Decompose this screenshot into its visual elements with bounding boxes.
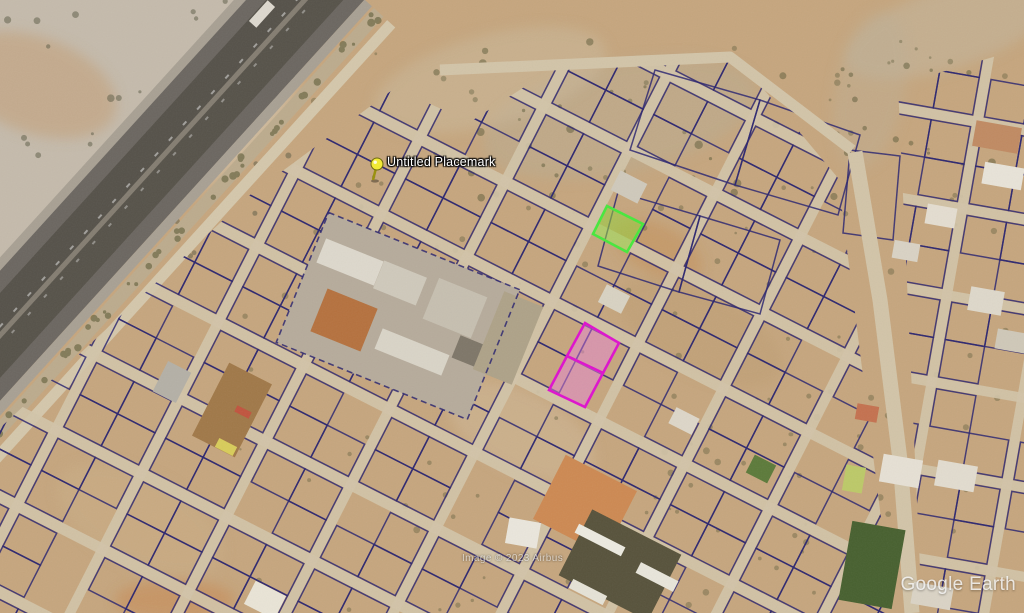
google-earth-logo: Google Earth: [900, 574, 1016, 596]
satellite-map: [0, 0, 1024, 613]
placemark-label[interactable]: Untitled Placemark: [387, 155, 496, 169]
earth-viewport[interactable]: Untitled Placemark Image © 2023 Airbus G…: [0, 0, 1024, 613]
imagery-attribution: Image © 2023 Airbus: [462, 553, 563, 564]
image-grain: [0, 0, 1024, 613]
